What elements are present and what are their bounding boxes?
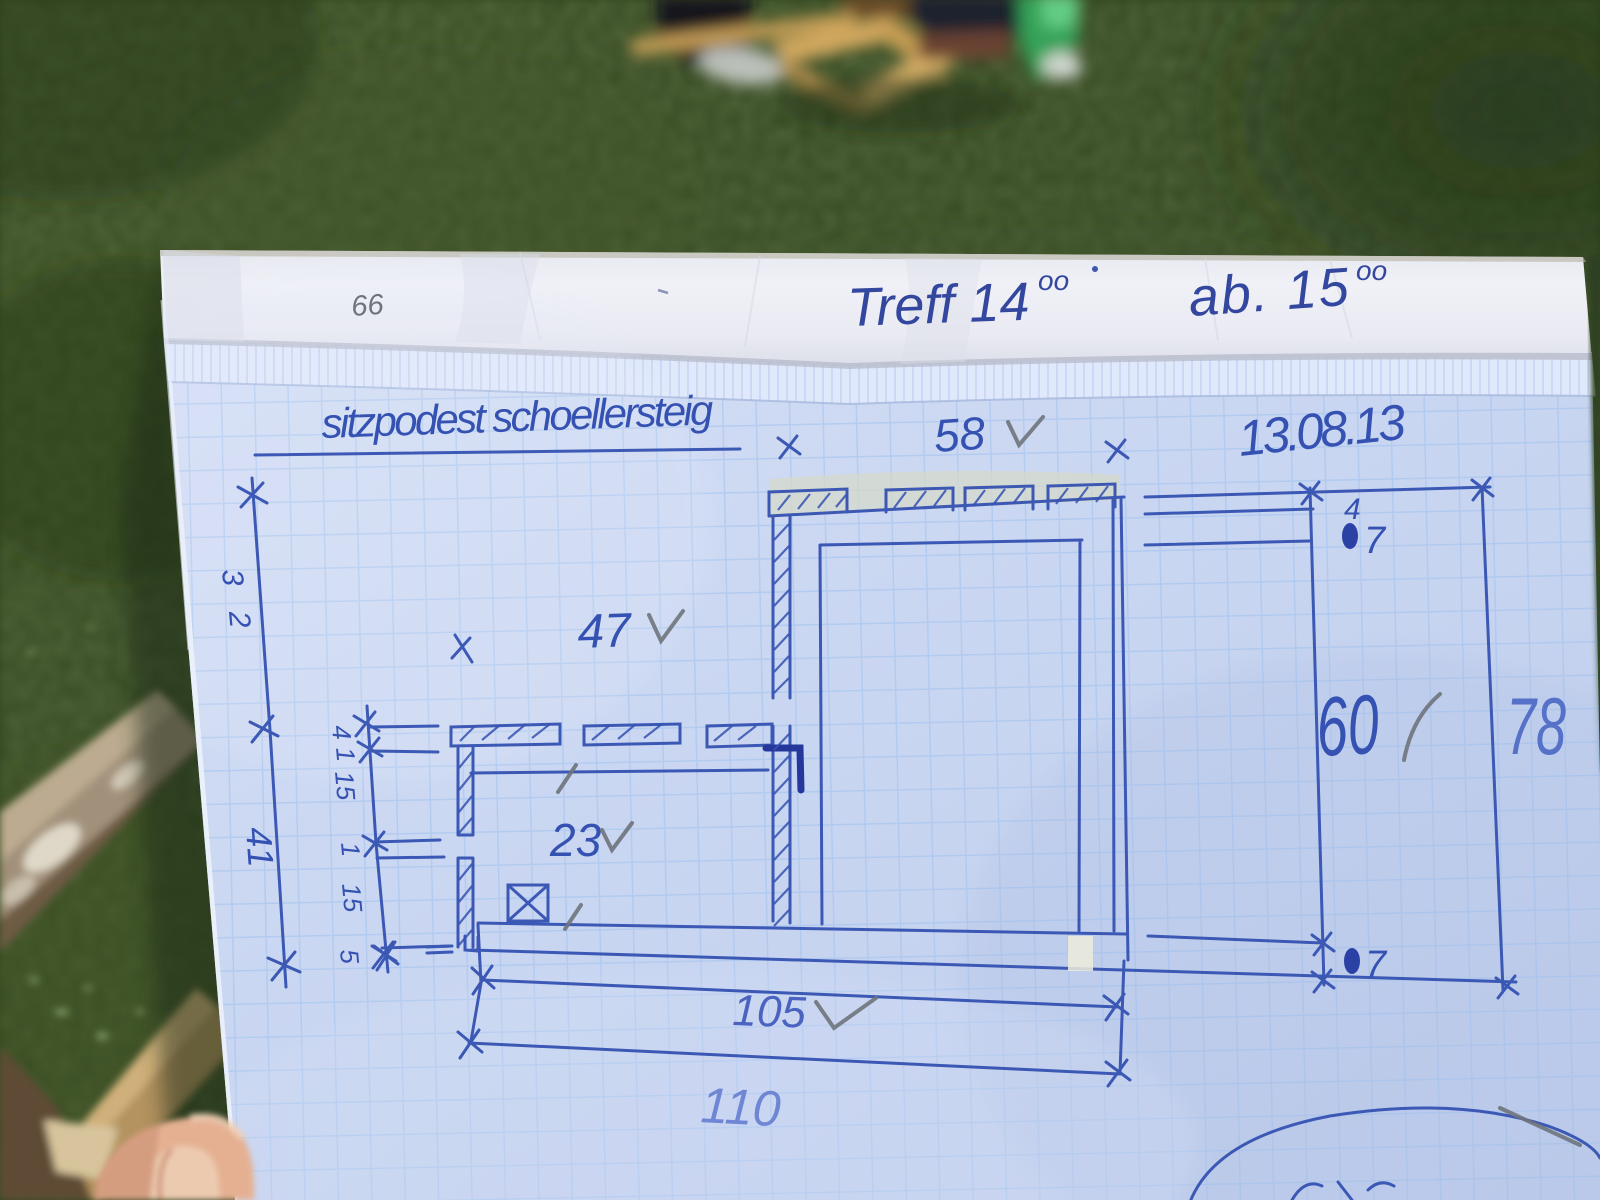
svg-text:1: 1 — [330, 746, 361, 763]
svg-text:Treff 14: Treff 14 — [846, 272, 1030, 338]
svg-text:105: 105 — [732, 986, 808, 1038]
svg-text:2: 2 — [222, 609, 256, 630]
svg-text:1: 1 — [335, 841, 366, 858]
svg-text:47: 47 — [577, 604, 635, 659]
svg-text:3: 3 — [215, 568, 249, 588]
svg-text:4: 4 — [1344, 493, 1361, 526]
svg-text:78: 78 — [1506, 681, 1566, 772]
svg-text:58: 58 — [932, 407, 987, 462]
svg-text:7: 7 — [1364, 520, 1387, 562]
svg-text:110: 110 — [699, 1077, 782, 1137]
svg-text:60: 60 — [1314, 678, 1381, 775]
svg-text:15: 15 — [336, 882, 368, 914]
svg-text:oo: oo — [1356, 255, 1387, 286]
svg-text:15: 15 — [329, 770, 361, 802]
svg-text:ab. 15: ab. 15 — [1187, 257, 1353, 328]
svg-text:23: 23 — [549, 814, 602, 866]
svg-text:41: 41 — [238, 826, 282, 869]
svg-text:4: 4 — [326, 724, 357, 741]
svg-text:66: 66 — [350, 289, 385, 323]
svg-text:oo: oo — [1038, 265, 1069, 296]
svg-text:7: 7 — [1365, 944, 1388, 986]
